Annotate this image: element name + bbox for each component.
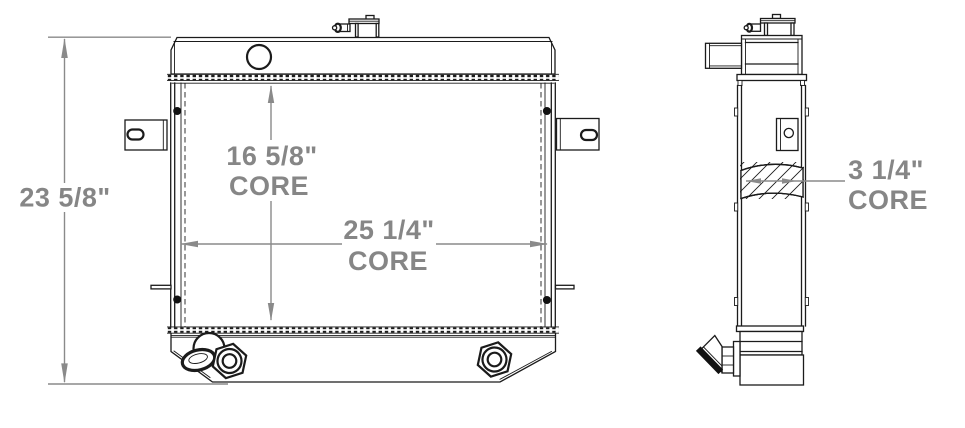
side-top-tank	[737, 36, 807, 86]
bottom-tank	[171, 333, 556, 385]
bracket-hole	[784, 128, 793, 137]
side-bracket	[777, 119, 799, 151]
mounting-bracket-left	[125, 120, 167, 150]
diagram-canvas: 23 5/8" 16 5/8" CORE 25 1/4" CORE 3 1/4"…	[0, 0, 965, 428]
dimension-core-width: 25 1/4" CORE	[180, 215, 548, 276]
side-stud-right	[556, 285, 575, 289]
bolt-dot	[543, 296, 551, 304]
side-outlet-elbow	[700, 336, 740, 377]
side-bottom-tank	[700, 326, 804, 387]
crimp-joint-bottom	[168, 327, 559, 337]
drain-plug-right	[476, 339, 513, 380]
core-side-channels	[151, 83, 574, 327]
overall-height-value: 23 5/8"	[19, 183, 110, 213]
front-view	[125, 16, 599, 385]
side-stud-left	[151, 285, 171, 289]
core-width-label: CORE	[348, 246, 428, 276]
radiator-drawing-page: 23 5/8" 16 5/8" CORE 25 1/4" CORE 3 1/4"…	[0, 0, 965, 428]
overflow-nipple	[744, 24, 760, 32]
side-filler-cap	[744, 15, 795, 36]
arrow-down-icon	[268, 303, 274, 321]
crimp-joint-top	[168, 74, 559, 83]
core-depth-label: CORE	[848, 185, 928, 215]
bolt-dot	[173, 107, 181, 115]
filler-cap	[333, 16, 380, 38]
overflow-nipple	[333, 24, 351, 32]
inlet-pipe	[706, 43, 742, 68]
bracket-slot	[581, 130, 597, 140]
core-height-label: CORE	[229, 171, 309, 201]
arrow-up-icon	[268, 85, 274, 103]
bracket-slot	[128, 130, 144, 140]
dimension-core-height: 16 5/8" CORE	[226, 85, 317, 321]
side-body	[735, 86, 809, 327]
tank-flange	[737, 75, 807, 81]
mounting-bracket-right	[557, 119, 600, 151]
arrow-up-icon	[61, 38, 68, 58]
arrow-left-icon	[180, 241, 198, 247]
side-view	[700, 15, 826, 387]
core-section	[700, 158, 826, 206]
arrow-down-icon	[61, 363, 68, 383]
bolt-dot	[543, 107, 551, 115]
core-width-value: 25 1/4"	[343, 215, 434, 245]
bolt-dot	[173, 296, 181, 304]
core-height-value: 16 5/8"	[226, 141, 317, 171]
top-tank	[171, 38, 555, 75]
core-depth-value: 3 1/4"	[848, 155, 924, 185]
